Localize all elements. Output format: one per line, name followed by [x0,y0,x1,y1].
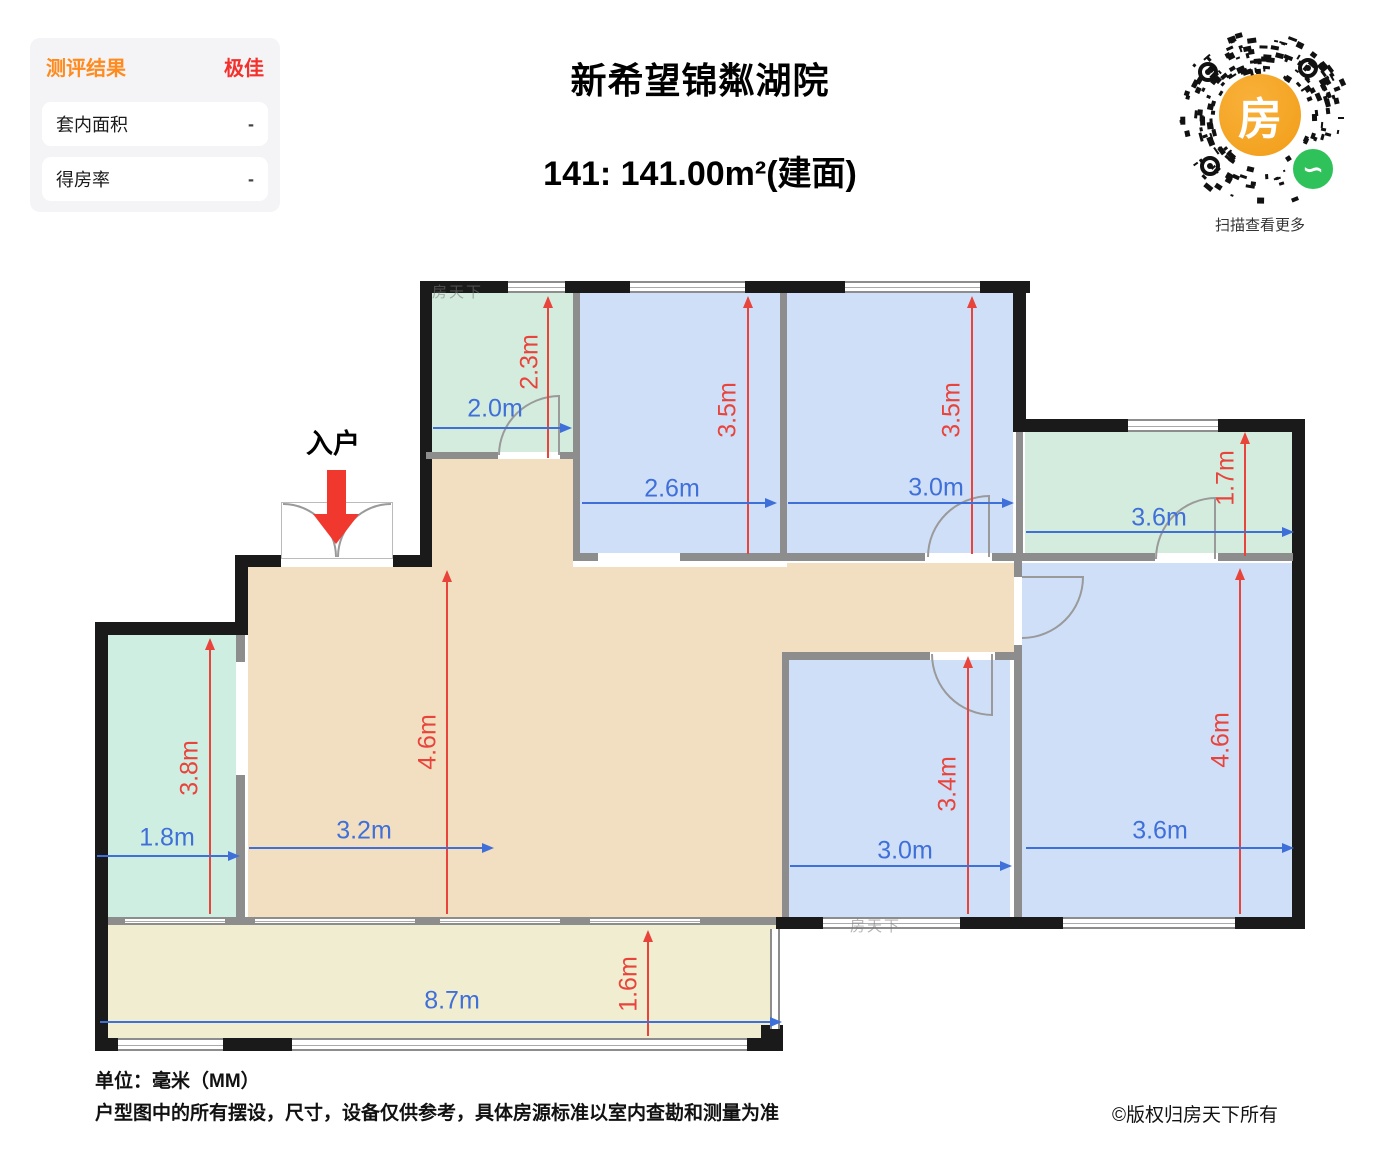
wall-divider [1014,561,1022,577]
qr-dot [1283,170,1286,173]
qr-dot [1250,70,1254,76]
wall-entry-left [240,555,283,567]
qr-caption: 扫描查看更多 [1172,214,1348,235]
qr-dot [1337,130,1340,134]
window [1128,419,1218,432]
wall-divider [1014,645,1022,917]
qr-dot [1287,37,1296,42]
wall-divider [680,553,925,561]
room-left-green [108,635,236,917]
dim-label: 2.6m [644,475,700,504]
qr-dot [1227,36,1236,44]
qr-dot [1325,108,1329,115]
qr-dot [1220,81,1225,86]
eval-row-value: - [248,169,254,190]
wall-divider [780,293,787,555]
qr-dot [1324,99,1331,108]
wall-divider [236,775,245,917]
window [255,917,415,925]
balcony-right-wall [770,929,780,1029]
qr-dot [1309,51,1317,58]
qr-dot [1197,110,1202,116]
qr-dot [1210,101,1216,107]
disclaimer-text: 户型图中的所有摆设，尺寸，设备仅供参考，具体房源标准以室内查勘和测量为准 [95,1098,779,1125]
wall-divider [782,652,789,917]
qr-dot [1228,66,1235,72]
qr-dot [1306,96,1312,101]
qr-dot [1210,110,1214,114]
qr-dot [1266,57,1275,63]
dim-label: 3.6m [1132,817,1188,846]
eval-row-label: 得房率 [56,166,110,192]
wall-left [95,622,108,1051]
window [630,281,745,293]
wall-divider [236,635,245,662]
watermark: 房天下 [850,915,901,936]
dim-arrow-h [1026,847,1292,849]
qr-dot [1265,174,1269,179]
dim-arrow-v [967,658,969,914]
wall-divider [573,293,580,555]
dim-arrow-v [209,640,211,914]
qr-center-logo: 房 [1219,74,1301,156]
qr-dot [1320,121,1322,127]
window [118,1038,223,1051]
wall-divider [573,553,598,561]
window [845,281,980,293]
qr-dot [1270,45,1279,50]
dim-label: 2.0m [467,395,523,424]
miniprogram-icon: ∽ [1290,146,1336,192]
qr-dot [1206,94,1211,99]
qr-dot [1248,49,1255,55]
eval-row-inner-area: 套内面积 - [42,102,268,146]
eval-row-house-rate: 得房率 - [42,157,268,201]
wall-divider [560,452,573,459]
copyright-text: ©版权归房天下所有 [1112,1100,1278,1127]
dim-arrow-h [100,1021,780,1023]
qr-dot [1236,57,1241,60]
window [292,1038,747,1051]
room-bedroom-top-1 [580,293,780,555]
page-title: 新希望锦粼湖院 [420,52,980,104]
qr-dot [1295,41,1304,49]
qr-dot [1200,127,1203,132]
evaluation-panel: 测评结果 极佳 套内面积 - 得房率 - [30,38,280,212]
dim-arrow-h [249,847,492,849]
dim-label: 4.6m [414,714,443,770]
qr-dot [1225,45,1232,51]
dim-label: 3.0m [908,474,964,503]
window [508,281,565,293]
qr-dot [1247,166,1255,173]
qr-dot [1247,37,1257,44]
qr-dot [1301,88,1305,92]
dim-label: 3.0m [877,837,933,866]
window [440,917,560,925]
watermark: 房天下 [432,281,483,302]
door-leaf [1022,576,1084,578]
entrance-label: 入户 [268,422,398,461]
qr-dot [1291,196,1299,203]
qr-dot [1183,90,1190,96]
qr-dot [1338,117,1344,119]
wall-entry-riser [235,555,248,635]
window [590,917,700,925]
qr-dot [1260,46,1268,49]
qr-dot [1296,54,1300,60]
qr-dot [1246,184,1255,188]
qr-dot [1263,66,1265,71]
qr-dot [1258,197,1265,203]
dim-arrow-v [1239,570,1241,914]
window [1063,917,1235,929]
qr-dot [1180,120,1185,123]
dim-label: 1.7m [1212,450,1241,506]
qr-dot [1315,110,1319,116]
window [125,917,225,925]
qr-dot [1193,64,1197,68]
qr-dot [1281,42,1285,45]
qr-dot [1210,119,1213,125]
qr-dot [1214,183,1223,191]
wall-notch-vertical [1013,281,1026,432]
qr-code-block: 房 ∽ 扫描查看更多 [1172,28,1348,238]
entrance-arrow-icon [313,514,359,544]
qr-dot [1206,55,1212,61]
qr-code: 房 ∽ [1172,28,1348,204]
qr-dot [1203,183,1213,192]
qr-dot [1338,78,1345,86]
qr-dot [1235,32,1243,39]
dim-arrow-v [547,298,549,458]
wall-divider [426,452,498,459]
qr-dot [1230,194,1233,197]
dim-arrow-v [971,298,973,554]
qr-dot [1240,174,1248,179]
qr-dot [1201,88,1205,93]
eval-row-label: 套内面积 [56,111,128,137]
wall-top-left-vertical [420,281,432,567]
dim-label: 3.5m [938,382,967,438]
evaluation-title: 测评结果 [46,52,126,81]
unit-note: 单位：毫米（MM） [95,1066,260,1093]
qr-dot [1274,40,1278,43]
qr-dot [1296,81,1301,86]
dim-label: 3.5m [714,382,743,438]
entrance-arrow-icon [327,470,346,516]
dim-label: 1.6m [615,956,644,1012]
evaluation-rating-badge: 极佳 [224,52,264,81]
qr-dot [1185,131,1191,137]
dim-arrow-h [433,427,570,429]
wall-divider [1016,432,1023,555]
qr-dot [1279,181,1285,185]
floorplan-page: 测评结果 极佳 套内面积 - 得房率 - 新希望锦粼湖院 141: 141.00… [0,0,1400,1150]
wall-divider [995,652,1022,660]
qr-dot [1333,98,1339,105]
dim-label: 3.2m [336,817,392,846]
door-leaf [1214,497,1216,559]
dim-arrow-v [747,298,749,554]
wall-divider [785,652,930,660]
qr-dot [1315,92,1323,101]
qr-dot [1320,127,1325,131]
door-leaf [988,495,990,557]
wall-divider [1218,553,1293,561]
dim-label: 2.3m [516,334,545,390]
dim-arrow-v [446,572,448,914]
dim-arrow-h [788,502,1012,504]
dim-label: 4.6m [1207,712,1236,768]
corridor [787,563,1014,652]
dim-arrow-h [97,855,238,857]
qr-dot [1334,86,1341,92]
living-dining-area [248,567,787,917]
door-leaf [991,654,993,716]
dim-label: 1.8m [139,824,195,853]
qr-dot [1275,53,1284,60]
dim-label: 8.7m [424,987,480,1016]
qr-dot [1193,162,1198,167]
dim-label: 3.8m [176,740,205,796]
wall-left-wing-top [95,622,247,635]
eval-row-value: - [248,114,254,135]
dim-label: 3.4m [934,756,963,812]
hallway-upper-lobe [432,456,573,567]
qr-dot [1325,132,1332,137]
dim-label: 3.6m [1131,504,1187,533]
unit-area-subtitle: 141: 141.00m²(建面) [420,146,980,195]
dim-arrow-v [1244,434,1246,556]
